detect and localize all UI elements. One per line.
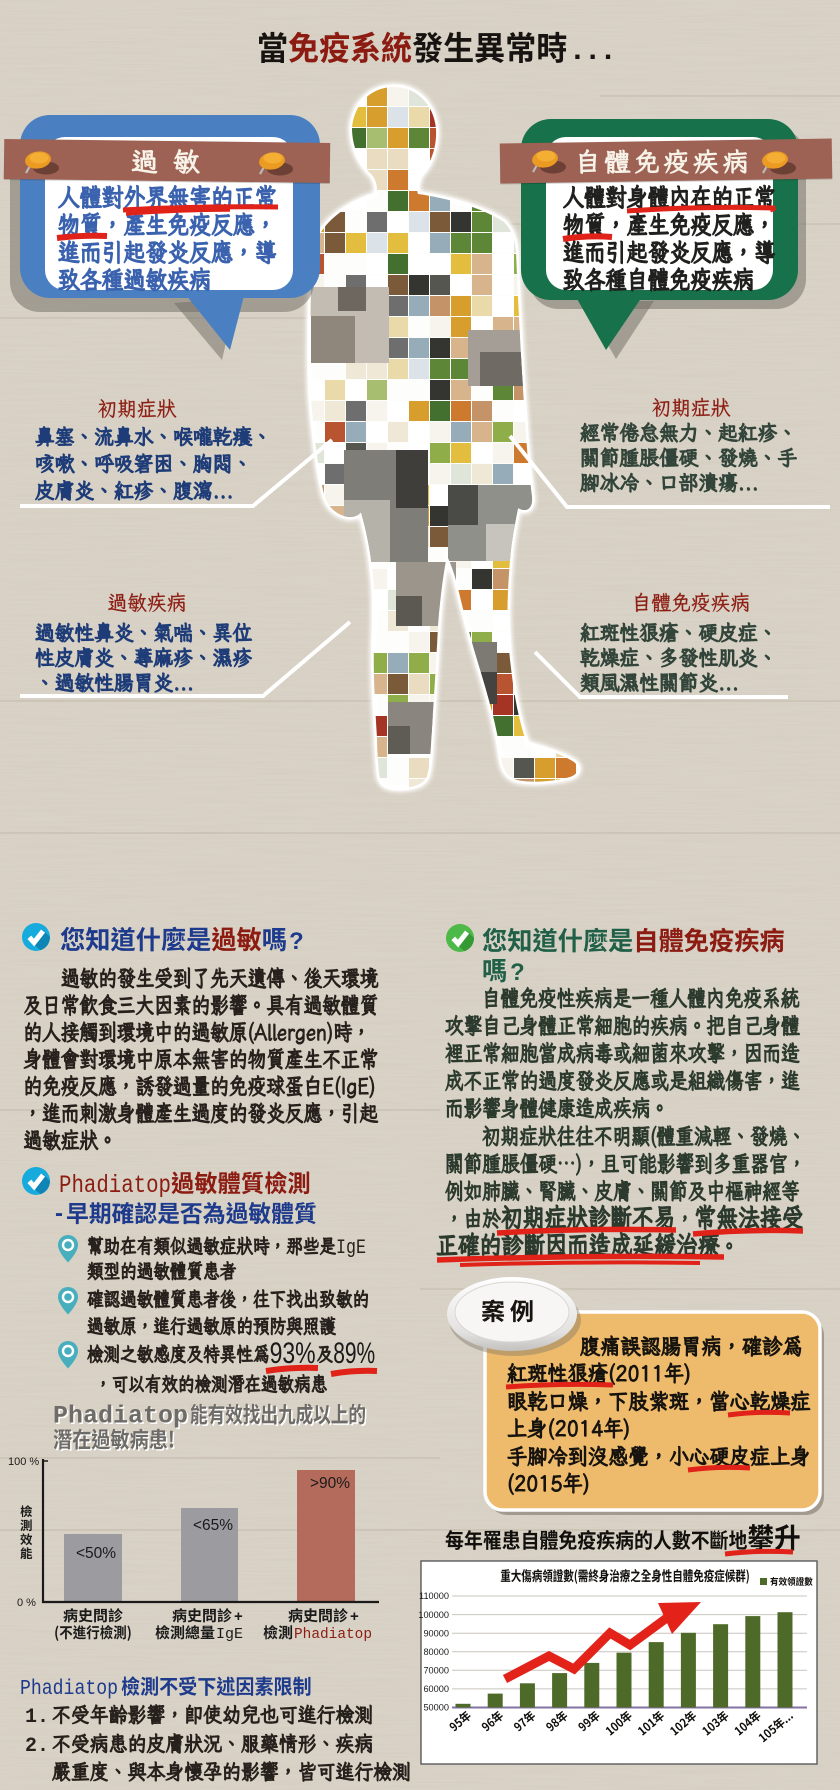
svg-text:+: + <box>234 1608 243 1625</box>
svg-text:0 %: 0 % <box>17 1597 36 1609</box>
svg-text:Phadiatop: Phadiatop <box>59 1171 171 1200</box>
svg-text:2.: 2. <box>25 1735 49 1758</box>
svg-text:Phadiatop: Phadiatop <box>53 1402 188 1431</box>
svg-text:<50%: <50% <box>76 1545 116 1562</box>
svg-text:Phadiatop: Phadiatop <box>294 1626 372 1643</box>
svg-text:89%: 89% <box>333 1337 375 1370</box>
svg-text:90000: 90000 <box>423 1628 449 1638</box>
svg-text:<65%: <65% <box>193 1517 233 1534</box>
svg-text:IgE: IgE <box>336 1237 366 1260</box>
svg-text:Phadiatop: Phadiatop <box>20 1678 118 1701</box>
svg-text:110000: 110000 <box>419 1591 449 1601</box>
svg-text:80000: 80000 <box>423 1647 449 1657</box>
svg-text:60000: 60000 <box>423 1684 449 1694</box>
svg-text:-: - <box>55 1200 63 1227</box>
svg-text:70000: 70000 <box>423 1666 449 1676</box>
svg-text:1.: 1. <box>25 1706 49 1729</box>
svg-text:100000: 100000 <box>418 1610 449 1620</box>
svg-text:>90%: >90% <box>310 1475 350 1492</box>
svg-text:100 %: 100 % <box>8 1456 39 1468</box>
svg-text:...: ... <box>573 33 619 66</box>
svg-text:?: ? <box>289 928 304 955</box>
svg-text:+: + <box>350 1608 359 1625</box>
svg-text:?: ? <box>510 959 525 986</box>
svg-text:50000: 50000 <box>423 1703 449 1713</box>
svg-text:IgE: IgE <box>216 1626 243 1643</box>
